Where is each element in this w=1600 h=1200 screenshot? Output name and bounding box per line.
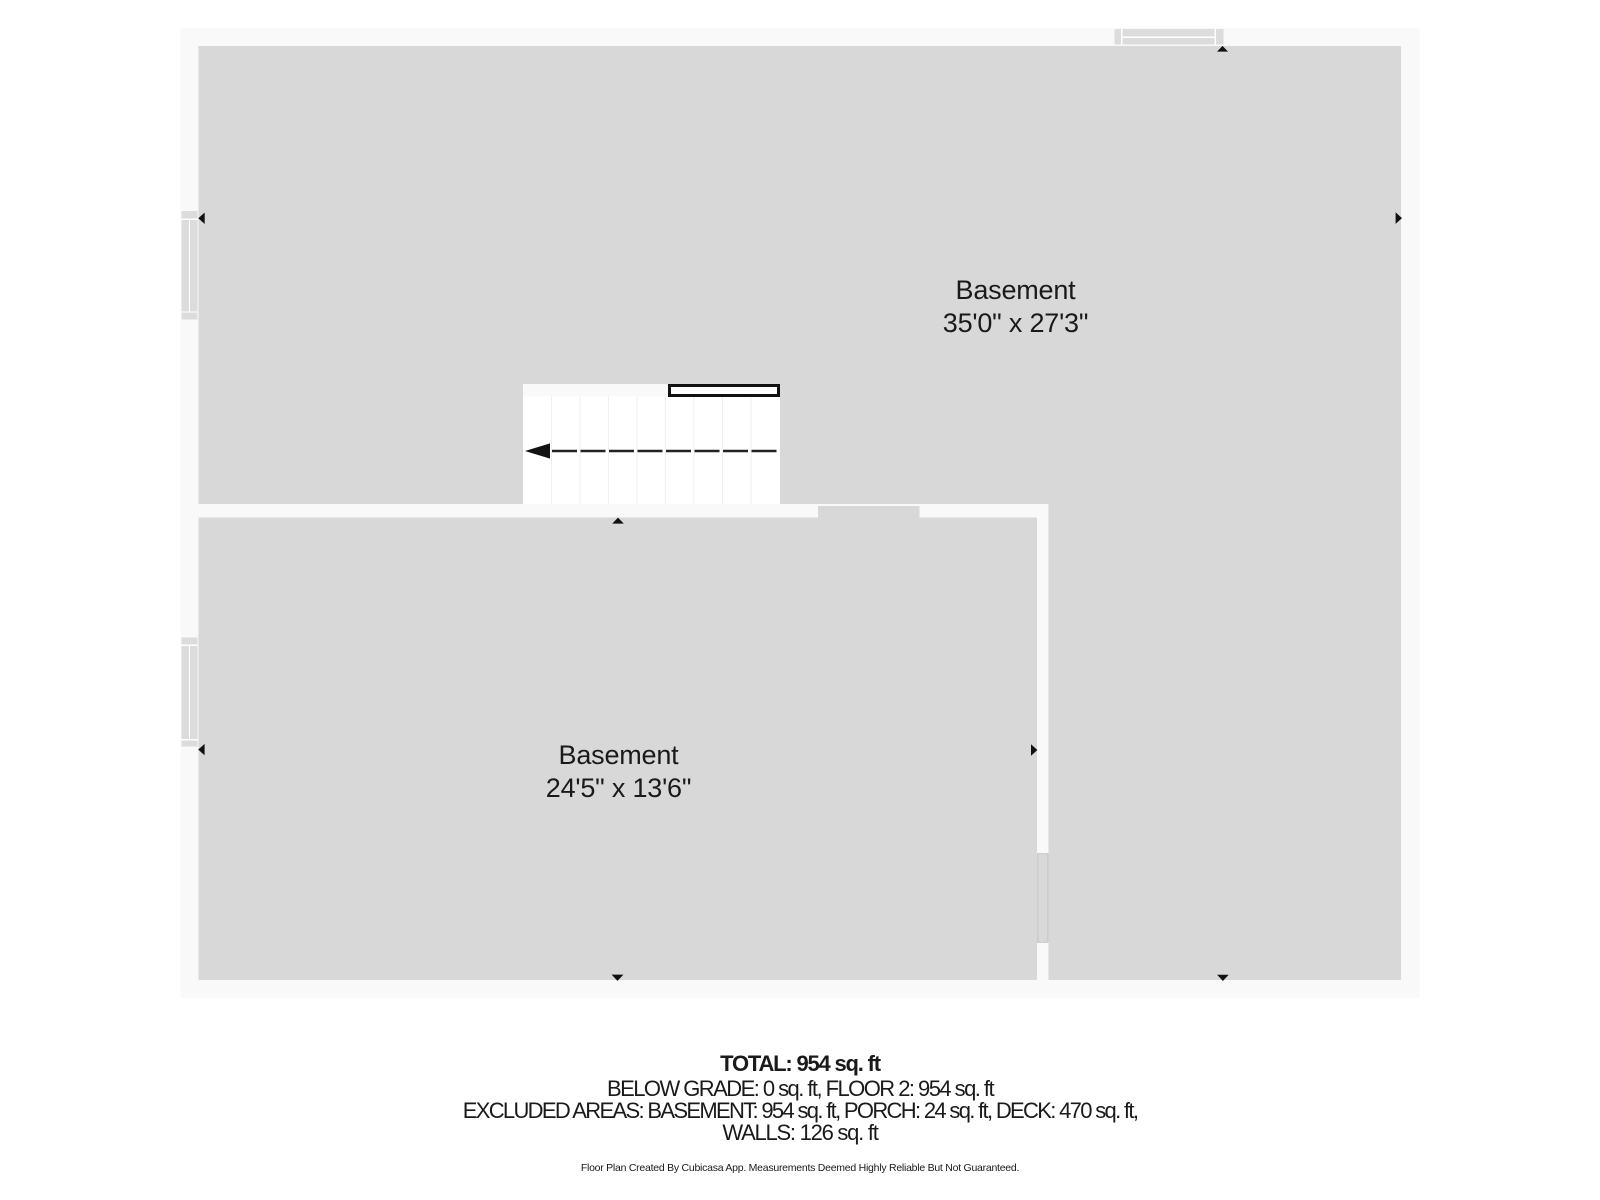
svg-text:24'5" x 13'6": 24'5" x 13'6" bbox=[546, 773, 691, 803]
svg-text:TOTAL: 954 sq. ft: TOTAL: 954 sq. ft bbox=[720, 1051, 882, 1076]
svg-text:Basement: Basement bbox=[559, 740, 680, 770]
svg-text:Floor Plan Created By Cubicasa: Floor Plan Created By Cubicasa App. Meas… bbox=[581, 1162, 1019, 1174]
svg-text:Basement: Basement bbox=[956, 275, 1077, 305]
svg-text:35'0" x 27'3": 35'0" x 27'3" bbox=[943, 308, 1088, 338]
svg-text:WALLS: 126 sq. ft: WALLS: 126 sq. ft bbox=[722, 1120, 878, 1145]
